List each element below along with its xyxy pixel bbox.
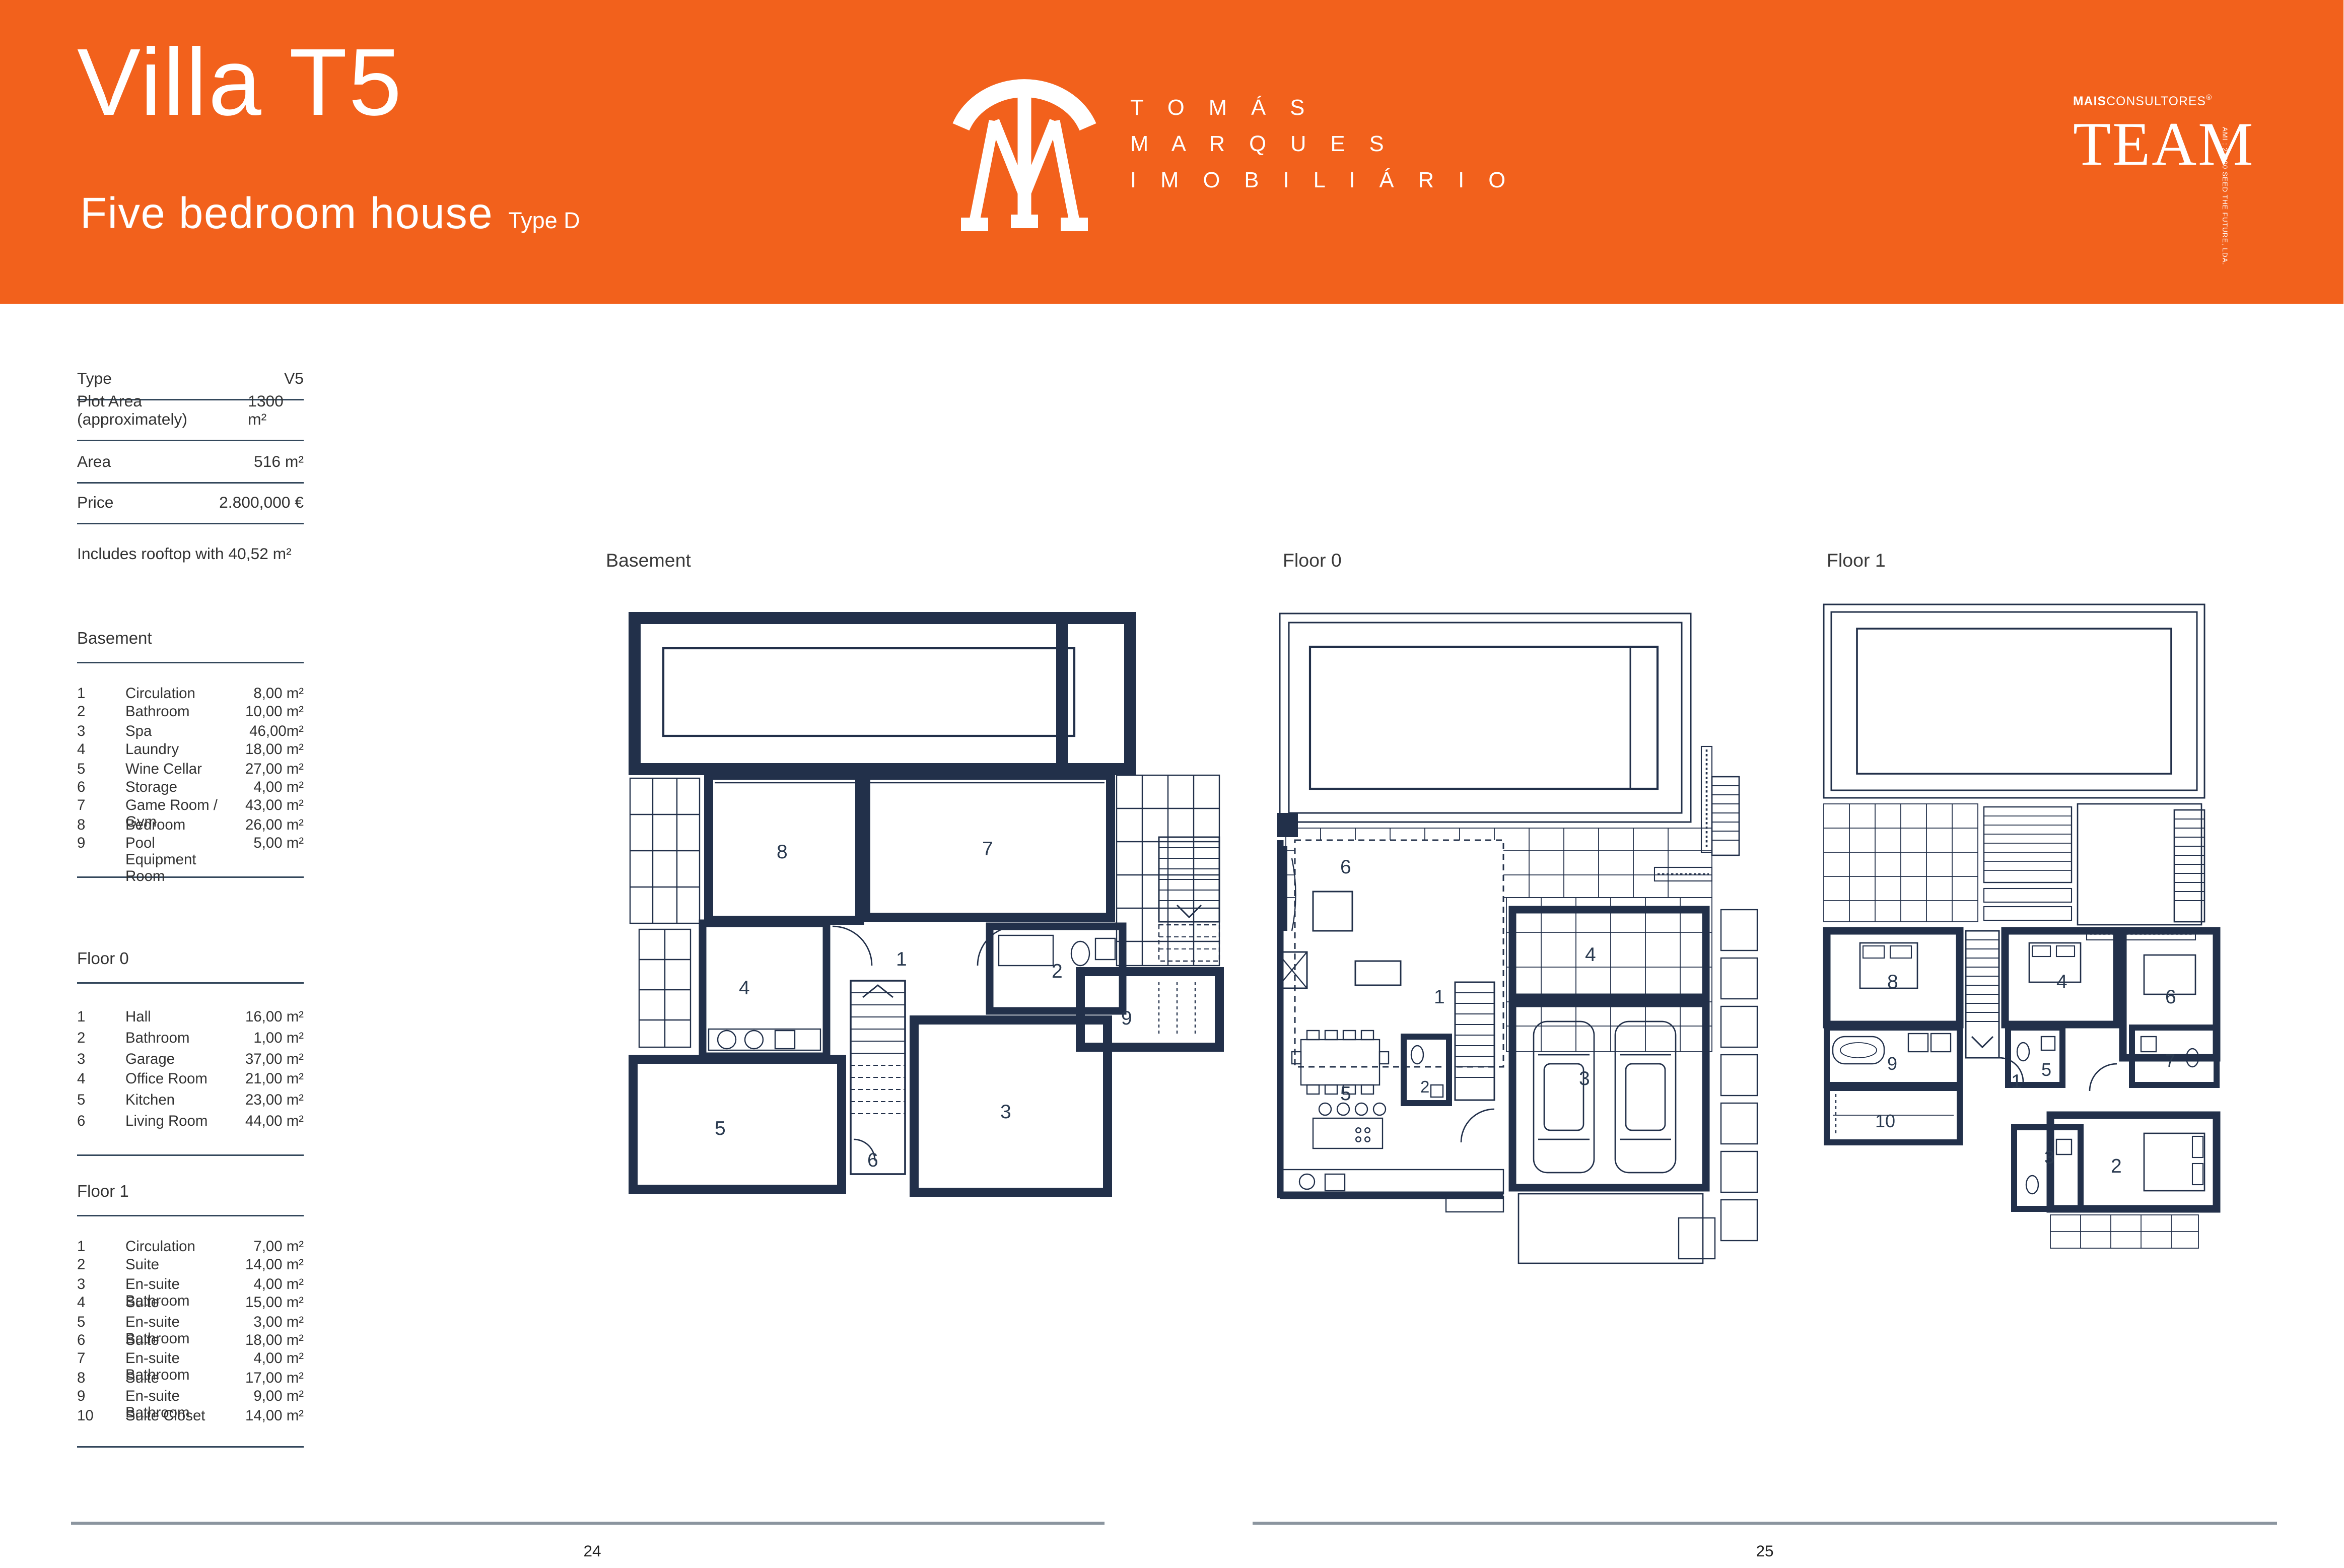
room-row: 4 Office Room 21,00 m² (77, 1072, 304, 1093)
room-label: 5 (715, 1118, 726, 1139)
subtitle-row: Five bedroom house Type D (80, 190, 580, 240)
brochure-page: Villa T5 Five bedroom house Type D (0, 0, 2344, 1568)
room-area: 18,00 m² (219, 1333, 304, 1349)
room-area: 5,00 m² (219, 836, 304, 852)
footer-rule-right (1253, 1522, 2277, 1525)
room-row: 2 Bathroom 10,00 m² (77, 705, 304, 723)
room-list: 1 Hall 16,00 m² 2 Bathroom 1,00 m² 3 Gar… (77, 1009, 304, 1134)
room-label: 4 (1585, 944, 1596, 966)
room-area: 8,00 m² (219, 686, 304, 703)
brand-line: T O M Á S (1130, 91, 1514, 127)
room-row: 3 Garage 37,00 m² (77, 1051, 304, 1072)
room-number: 5 (77, 1093, 125, 1110)
room-name: Circulation (125, 1239, 219, 1256)
room-name: Suite (125, 1258, 219, 1274)
room-number: 6 (77, 780, 125, 796)
room-row: 7 Game Room / Gym 43,00 m² (77, 798, 304, 817)
room-label: 8 (1887, 971, 1898, 993)
room-area: 1,00 m² (219, 1030, 304, 1047)
room-row: 3 Spa 46,00m² (77, 723, 304, 742)
room-label: 2 (1052, 961, 1063, 982)
floorplan-basement: 8 7 9 1 2 4 5 6 3 (627, 607, 1224, 1207)
section-title: Basement (77, 630, 304, 648)
spec-label: Area (77, 453, 111, 471)
maisconsultores-team-logo: MAISCONSULTORES® TEAM AMI : 23990 SEED T… (2073, 94, 2254, 175)
room-label: 6 (1340, 856, 1351, 878)
maisconsultores-wordmark: MAISCONSULTORES® (2073, 94, 2254, 108)
room-area: 15,00 m² (219, 1296, 304, 1312)
spec-row: Area 516 m² (77, 442, 304, 484)
room-number: 4 (77, 1296, 125, 1312)
brand-line: I M O B I L I Á R I O (1130, 163, 1514, 199)
room-row: 5 Wine Cellar 27,00 m² (77, 761, 304, 780)
divider (77, 662, 304, 663)
room-row: 6 Storage 4,00 m² (77, 780, 304, 798)
room-row: 3 En-suite Bathroom 4,00 m² (77, 1276, 304, 1295)
floorplan-basement-drawing: 8 7 9 1 2 4 5 6 3 (627, 607, 1224, 1200)
page-number-right: 25 (1742, 1543, 1787, 1561)
room-number: 1 (77, 1239, 125, 1256)
section-title: Floor 1 (77, 1183, 304, 1201)
room-row: 1 Circulation 7,00 m² (77, 1239, 304, 1258)
footer-rule-left (71, 1522, 1105, 1525)
room-number: 3 (77, 1276, 125, 1293)
room-row: 10 Suite Closet 14,00 m² (77, 1408, 304, 1426)
spec-row: Price 2.800,000 € (77, 483, 304, 525)
divider (77, 1154, 304, 1155)
room-label: 5 (2041, 1059, 2051, 1080)
divider (77, 1215, 304, 1216)
section-floor0: Floor 0 1 Hall 16,00 m² 2 Bathroom 1,00 … (77, 950, 304, 1155)
brand-name: T O M Á S M A R Q U E S I M O B I L I Á … (1130, 91, 1514, 199)
plan-caption-basement: Basement (606, 550, 691, 571)
room-list: 1 Circulation 7,00 m² 2 Suite 14,00 m² 3… (77, 1239, 304, 1426)
room-number: 8 (77, 817, 125, 834)
room-label: 1 (2011, 1071, 2022, 1093)
room-row: 7 En-suite Bathroom 4,00 m² (77, 1351, 304, 1370)
plan-caption-floor0: Floor 0 (1283, 550, 1342, 571)
room-area: 46,00m² (219, 723, 304, 740)
room-area: 14,00 m² (219, 1408, 304, 1424)
room-area: 14,00 m² (219, 1258, 304, 1274)
room-label: 5 (1340, 1083, 1351, 1105)
room-number: 3 (77, 1051, 125, 1068)
room-number: 4 (77, 1072, 125, 1088)
room-name: Storage (125, 780, 219, 796)
room-label: 1 (1434, 986, 1445, 1008)
room-area: 7,00 m² (219, 1239, 304, 1256)
room-number: 1 (77, 686, 125, 703)
floorplan-floor1: 8 4 6 9 10 5 7 1 2 3 (1821, 601, 2221, 1259)
room-number: 9 (77, 1389, 125, 1405)
page: Villa T5 Five bedroom house Type D (0, 0, 2344, 1568)
room-name: Pool Equipment Room (125, 836, 219, 885)
room-number: 2 (77, 1030, 125, 1047)
room-number: 4 (77, 742, 125, 759)
room-label: 7 (2165, 1050, 2175, 1071)
room-name: Living Room (125, 1114, 219, 1130)
room-number: 1 (77, 1009, 125, 1026)
room-name: Kitchen (125, 1093, 219, 1110)
room-row: 1 Circulation 8,00 m² (77, 686, 304, 705)
mais-bold: MAIS (2073, 95, 2106, 108)
room-name: Bathroom (125, 1030, 219, 1047)
room-row: 5 Kitchen 23,00 m² (77, 1093, 304, 1114)
room-row: 6 Suite 18,00 m² (77, 1333, 304, 1351)
spec-row: Plot Area (approximately) 1300 m² (77, 400, 304, 442)
room-name: Bedroom (125, 817, 219, 834)
orange-masthead: Villa T5 Five bedroom house Type D (0, 0, 2344, 304)
floorplan-floor0: 6 4 1 2 5 3 (1277, 601, 1775, 1277)
room-name: Circulation (125, 686, 219, 703)
spec-value: 516 m² (254, 453, 304, 471)
room-number: 2 (77, 1258, 125, 1274)
room-label: 9 (1887, 1053, 1897, 1074)
room-area: 26,00 m² (219, 817, 304, 834)
room-area: 43,00 m² (219, 798, 304, 815)
room-area: 4,00 m² (219, 1276, 304, 1293)
room-label: 8 (777, 841, 788, 863)
spec-label: Price (77, 495, 113, 513)
room-label: 6 (867, 1149, 878, 1171)
spec-label: Type (77, 370, 112, 388)
room-name: Hall (125, 1009, 219, 1026)
room-area: 23,00 m² (219, 1093, 304, 1110)
room-label: 6 (2165, 986, 2176, 1008)
subtitle: Five bedroom house (80, 190, 493, 240)
divider (77, 1446, 304, 1448)
room-label: 4 (2056, 971, 2067, 993)
room-label: 3 (2044, 1147, 2054, 1168)
room-row: 9 En-suite Bathroom 9,00 m² (77, 1389, 304, 1407)
room-area: 21,00 m² (219, 1072, 304, 1088)
room-label: 3 (1579, 1068, 1590, 1089)
tm-monogram-icon (949, 63, 1100, 242)
room-name: Office Room (125, 1072, 219, 1088)
room-number: 6 (77, 1114, 125, 1130)
room-label: 3 (1000, 1101, 1011, 1123)
room-row: 5 En-suite Bathroom 3,00 m² (77, 1314, 304, 1333)
team-side-text: AMI : 23990 SEED THE FUTURE, LDA. (2221, 127, 2229, 265)
room-number: 6 (77, 1333, 125, 1349)
spec-value: 1300 m² (248, 393, 304, 430)
room-area: 10,00 m² (219, 705, 304, 721)
room-row: 8 Suite 17,00 m² (77, 1370, 304, 1389)
spec-label: Plot Area (approximately) (77, 393, 248, 430)
plan-caption-floor1: Floor 1 (1827, 550, 1886, 571)
page-number-left: 24 (570, 1543, 615, 1561)
room-row: 4 Laundry 18,00 m² (77, 742, 304, 761)
room-name: Suite (125, 1370, 219, 1387)
room-row: 2 Suite 14,00 m² (77, 1258, 304, 1276)
room-name: Suite Closet (125, 1408, 219, 1424)
room-name: Wine Cellar (125, 761, 219, 778)
room-name: Spa (125, 723, 219, 740)
room-number: 3 (77, 723, 125, 740)
section-title: Floor 0 (77, 950, 304, 969)
room-number: 7 (77, 1351, 125, 1368)
room-label: 1 (896, 948, 907, 970)
room-label: 7 (982, 838, 993, 860)
spec-value: V5 (284, 370, 304, 388)
spec-value: 2.800,000 € (219, 495, 304, 513)
room-number: 5 (77, 1314, 125, 1331)
section-floor1: Floor 1 1 Circulation 7,00 m² 2 Suite 14… (77, 1183, 304, 1448)
room-area: 44,00 m² (219, 1114, 304, 1130)
room-area: 27,00 m² (219, 761, 304, 778)
room-area: 37,00 m² (219, 1051, 304, 1068)
room-row: 1 Hall 16,00 m² (77, 1009, 304, 1030)
tm-monogram-logo (949, 63, 1100, 249)
brand-line: M A R Q U E S (1130, 127, 1514, 163)
room-number: 7 (77, 798, 125, 815)
room-row: 2 Bathroom 1,00 m² (77, 1030, 304, 1051)
room-number: 9 (77, 836, 125, 852)
room-area: 17,00 m² (219, 1370, 304, 1387)
room-number: 10 (77, 1408, 125, 1424)
room-label: 10 (1875, 1111, 1895, 1131)
section-basement: Basement 1 Circulation 8,00 m² 2 Bathroo… (77, 630, 304, 877)
room-area: 18,00 m² (219, 742, 304, 759)
room-list: 1 Circulation 8,00 m² 2 Bathroom 10,00 m… (77, 686, 304, 855)
room-name: Suite (125, 1296, 219, 1312)
room-number: 5 (77, 761, 125, 778)
room-label: 4 (739, 977, 750, 999)
room-number: 8 (77, 1370, 125, 1387)
rooftop-note: Includes rooftop with 40,52 m² (77, 546, 292, 564)
room-label: 2 (2111, 1155, 2122, 1177)
room-row: 9 Pool Equipment Room 5,00 m² (77, 836, 304, 854)
floorplan-floor1-drawing: 8 4 6 9 10 5 7 1 2 3 (1821, 601, 2221, 1251)
room-area: 16,00 m² (219, 1009, 304, 1026)
room-area: 9,00 m² (219, 1389, 304, 1405)
room-area: 4,00 m² (219, 780, 304, 796)
room-row: 8 Bedroom 26,00 m² (77, 817, 304, 836)
room-area: 3,00 m² (219, 1314, 304, 1331)
room-label: 2 (1420, 1077, 1429, 1096)
room-name: Laundry (125, 742, 219, 759)
consultores-light: CONSULTORES (2106, 95, 2206, 108)
spec-table: Type V5 Plot Area (approximately) 1300 m… (77, 358, 304, 525)
type-tag: Type D (508, 209, 580, 234)
floorplan-floor0-drawing: 6 4 1 2 5 3 (1277, 601, 1775, 1269)
page-title: Villa T5 (77, 33, 403, 133)
room-label: 9 (1121, 1007, 1132, 1029)
room-row: 6 Living Room 44,00 m² (77, 1114, 304, 1134)
room-number: 2 (77, 705, 125, 721)
room-name: Bathroom (125, 705, 219, 721)
registered-mark: ® (2206, 94, 2212, 103)
room-area: 4,00 m² (219, 1351, 304, 1368)
room-row: 4 Suite 15,00 m² (77, 1296, 304, 1314)
room-name: Suite (125, 1333, 219, 1349)
divider (77, 982, 304, 984)
room-name: Garage (125, 1051, 219, 1068)
